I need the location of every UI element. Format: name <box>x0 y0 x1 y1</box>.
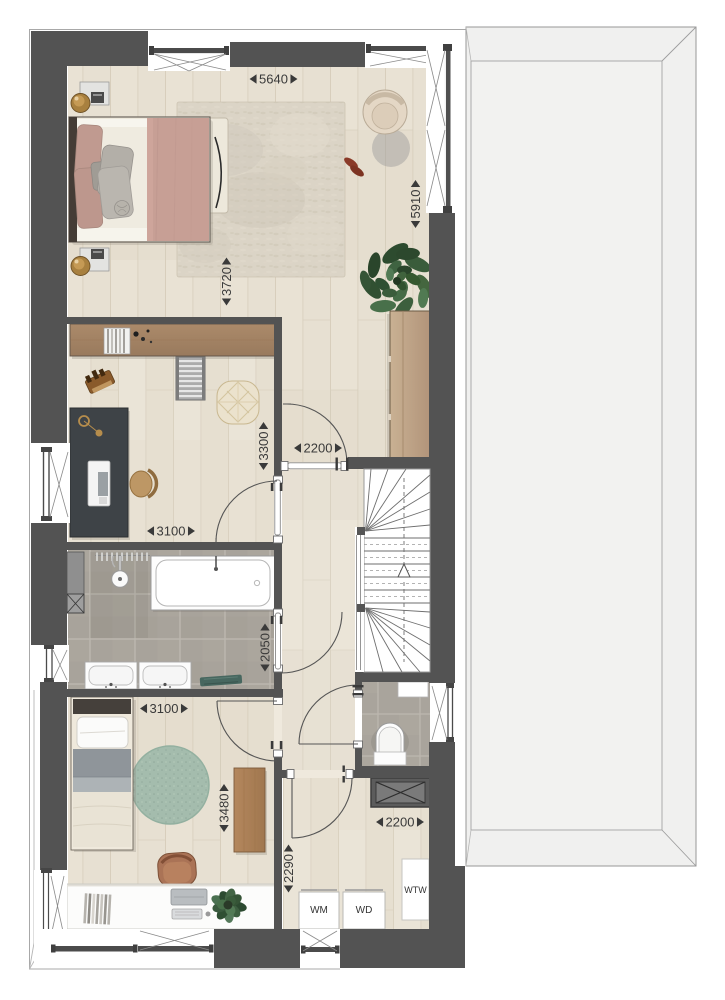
svg-text:WD: WD <box>356 905 373 916</box>
svg-text:2290: 2290 <box>281 854 296 883</box>
svg-text:5910: 5910 <box>408 190 423 219</box>
svg-text:2200: 2200 <box>386 815 415 830</box>
svg-text:2200: 2200 <box>304 441 333 456</box>
svg-text:WTW: WTW <box>404 885 427 895</box>
svg-text:3720: 3720 <box>219 267 234 296</box>
svg-text:3100: 3100 <box>157 524 186 539</box>
svg-text:WM: WM <box>310 905 328 916</box>
svg-text:3300: 3300 <box>256 432 271 461</box>
svg-text:2050: 2050 <box>258 633 273 662</box>
svg-text:5640: 5640 <box>259 72 288 87</box>
svg-text:3100: 3100 <box>150 701 179 716</box>
svg-text:3480: 3480 <box>217 794 232 823</box>
